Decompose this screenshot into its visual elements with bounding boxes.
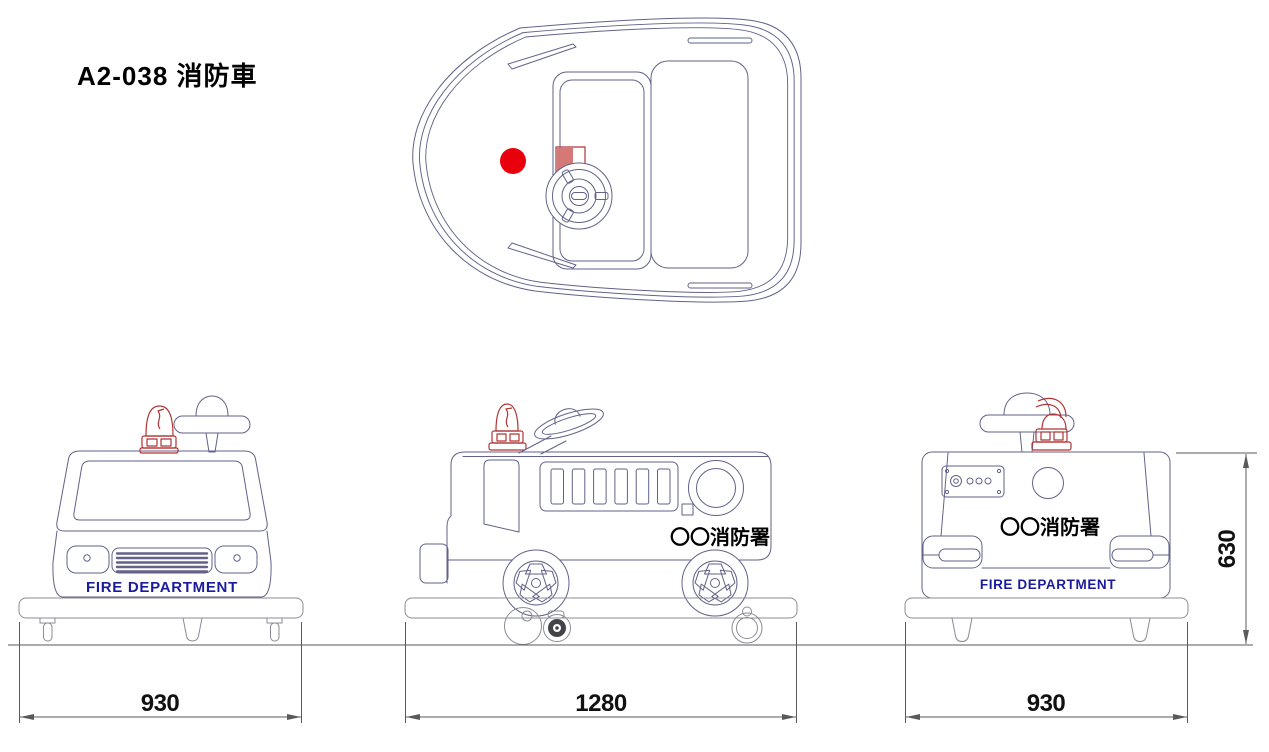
caster	[544, 611, 571, 642]
pillar-wedge-bottom	[508, 243, 576, 268]
caster	[183, 618, 202, 641]
road-wheel-rear	[682, 550, 748, 616]
steering-wheel-side-icon	[519, 398, 606, 454]
grille	[112, 548, 212, 573]
dimension-label-overall-height: 630	[1214, 530, 1241, 569]
rear-deck-panel	[651, 61, 748, 268]
drive-wheel	[505, 608, 542, 645]
control-panel	[942, 466, 1004, 497]
dimension-front-width: 930	[20, 622, 302, 723]
beacon-dot-top	[500, 148, 526, 174]
steering-wheel-top-icon	[546, 163, 612, 229]
rear-port-circle	[1033, 468, 1064, 499]
caster	[267, 618, 282, 641]
dimension-label-overall-length: 1280	[575, 690, 627, 717]
dimension-label-rear-width: 930	[1027, 690, 1066, 717]
rear-station-text: 〇〇消防署	[1000, 515, 1100, 539]
headlight-right	[215, 546, 257, 573]
door-window	[484, 460, 519, 532]
trim-strip-top	[688, 38, 752, 43]
platform-rear	[905, 598, 1188, 618]
drawing-title: A2-038 消防車	[77, 61, 258, 91]
dimension-label-front-width: 930	[141, 690, 180, 717]
caster	[952, 618, 972, 642]
windshield	[74, 461, 250, 520]
platform-front	[19, 598, 303, 618]
steering-wheel-front-icon	[174, 396, 250, 452]
front-view: FIRE DEPARTMENT	[19, 396, 303, 641]
caster	[732, 607, 762, 643]
road-wheel-front	[503, 550, 569, 616]
rear-view: 〇〇消防署 FIRE DEPARTMENT	[905, 393, 1188, 642]
front-step	[420, 544, 448, 583]
dimension-overall-height: 630	[1176, 453, 1257, 644]
side-view: 〇〇消防署	[405, 398, 797, 644]
top-view	[413, 18, 801, 302]
dimension-rear-width: 930	[906, 622, 1188, 723]
pillar-wedge-top	[508, 44, 576, 69]
body-shell-outer	[413, 18, 801, 302]
technical-drawing: A2-038 消防車	[0, 0, 1269, 752]
caster	[1130, 618, 1150, 642]
ladder-bracket	[682, 504, 693, 515]
side-station-text: 〇〇消防署	[670, 525, 770, 549]
ladder-icon	[540, 462, 678, 511]
headlight-left	[67, 546, 109, 573]
rear-banner-text: FIRE DEPARTMENT	[980, 577, 1116, 592]
tail-light-left	[923, 536, 982, 568]
cab-outline	[57, 451, 267, 531]
caster	[40, 618, 55, 641]
beacon-light-icon	[140, 406, 178, 453]
hose-reel-icon	[689, 461, 744, 516]
drawing-canvas: A2-038 消防車	[0, 0, 1269, 752]
beacon-light-icon	[1032, 398, 1071, 450]
front-banner-text: FIRE DEPARTMENT	[86, 579, 238, 596]
tail-light-right	[1110, 536, 1169, 568]
beacon-light-icon	[489, 404, 526, 450]
trim-strip-bottom	[688, 283, 752, 288]
dimension-overall-length: 1280	[406, 622, 797, 723]
